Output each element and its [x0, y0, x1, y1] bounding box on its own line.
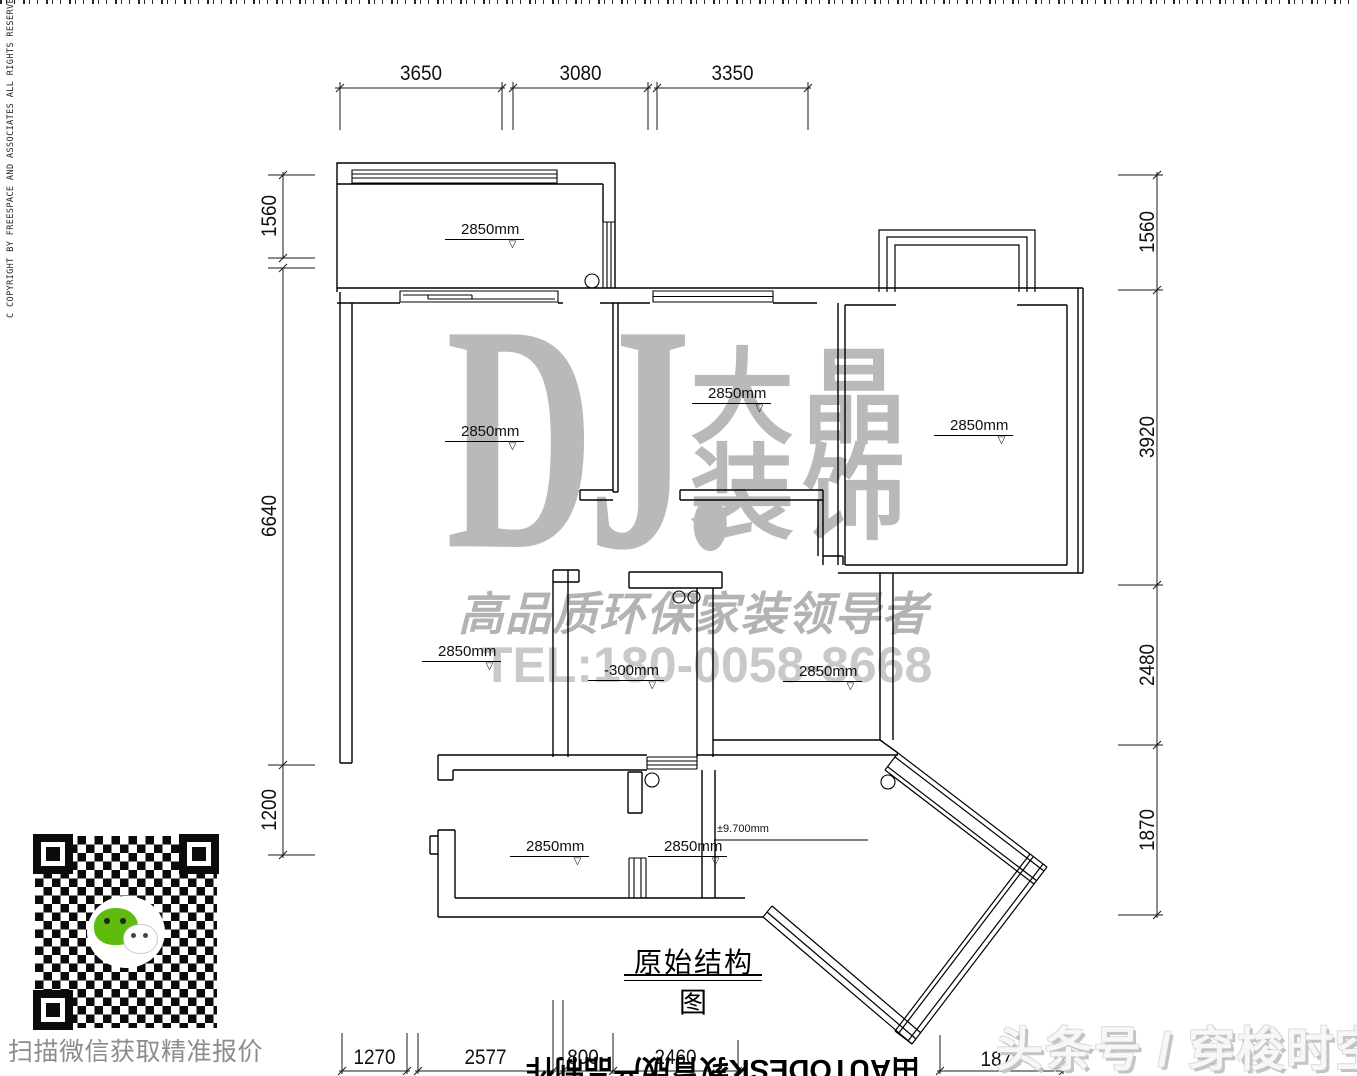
elevation-label-balcony: 2850mm ▽ [445, 222, 524, 240]
elevation-text: 2850mm [526, 838, 584, 855]
elevation-triangle-icon: ▽ [998, 436, 1006, 446]
elevation-text: 2850mm [950, 417, 1008, 434]
wechat-icon [87, 896, 165, 968]
elevation-triangle-icon: ▽ [486, 662, 494, 672]
elevation-text: 2850mm [461, 221, 519, 238]
elevation-text: -300mm [604, 662, 659, 679]
elevation-text: 2850mm [664, 838, 722, 855]
dimension-label-left-1: 1560 [259, 171, 281, 261]
dimension-label-top-1: 3650 [348, 63, 494, 85]
elevation-label-right-room: 2850mm ▽ [934, 418, 1013, 436]
dimension-label-bottom-1: 1270 [345, 1047, 404, 1069]
dimension-label-top-2: 3080 [520, 63, 642, 85]
watermark-slogan: 高品质环保家装领导者 [458, 578, 928, 644]
elevation-label-bay: ±9.700mm [717, 823, 769, 835]
elevation-text: 2850mm [799, 663, 857, 680]
dimension-label-right-3: 2480 [1137, 620, 1159, 710]
elevation-text: 2850mm [461, 423, 519, 440]
wechat-bubble-small [123, 924, 158, 954]
watermark-brand-cn: 大晶 装饰 [690, 352, 914, 543]
dimension-label-right-2: 3920 [1137, 392, 1159, 482]
dimension-label-left-3: 1200 [259, 765, 281, 855]
elevation-label-left-room: 2850mm ▽ [445, 424, 524, 442]
qr-caption: 扫描微信获取精准报价 [8, 1032, 254, 1068]
watermark-brand-cn-line2: 装饰 [690, 448, 914, 544]
title-underline [624, 974, 762, 976]
dimension-label-right-1: 1560 [1137, 187, 1159, 277]
title-underline [624, 980, 762, 981]
elevation-label-bottom-room-2: 2850mm ▽ [648, 839, 727, 857]
elevation-label-middle-room: 2850mm ▽ [692, 386, 771, 404]
elevation-triangle-icon: ▽ [648, 681, 656, 691]
diagonal-bay-window [763, 753, 1047, 1044]
elevation-label-lower-left: 2850mm ▽ [422, 644, 501, 662]
elevation-label-bottom-room-1: 2850mm ▽ [510, 839, 589, 857]
elevation-triangle-icon: ▽ [509, 240, 517, 250]
dimension-label-right-4: 1870 [1137, 785, 1159, 875]
elevation-text: ±9.700mm [717, 823, 769, 835]
elevation-triangle-icon: ▽ [574, 857, 582, 867]
elevation-label-corridor: 2850mm ▽ [783, 664, 862, 682]
elevation-triangle-icon: ▽ [847, 682, 855, 692]
qr-finder-pattern [33, 990, 73, 1030]
publisher-watermark: 头条号 / 穿梭时空 [996, 1011, 1357, 1076]
autodesk-education-stamp: 由AUTODESK教育版产品制作 [552, 1051, 920, 1076]
floor-plan-page: { "copyright_vertical": "C COPYRIGHT BY … [0, 0, 1357, 1076]
elevation-text: 2850mm [708, 385, 766, 402]
watermark-phone: TEL:180-0058-8668 [482, 636, 932, 694]
elevation-triangle-icon: ▽ [509, 442, 517, 452]
elevation-triangle-icon: ▽ [756, 404, 764, 414]
dimension-label-left-2: 6640 [259, 471, 281, 561]
dimension-label-top-3: 3350 [665, 63, 801, 85]
copyright-vertical-text: C COPYRIGHT BY FREESPACE AND ASSOCIATES … [6, 54, 16, 318]
elevation-label-sunken: -300mm ▽ [588, 663, 664, 681]
wechat-qr-code [35, 836, 217, 1028]
elevation-text: 2850mm [438, 643, 496, 660]
top-cropped-text-strip [0, 0, 1357, 4]
qr-finder-pattern [33, 834, 73, 874]
qr-finder-pattern [179, 834, 219, 874]
elevation-triangle-icon: ▽ [712, 857, 720, 867]
